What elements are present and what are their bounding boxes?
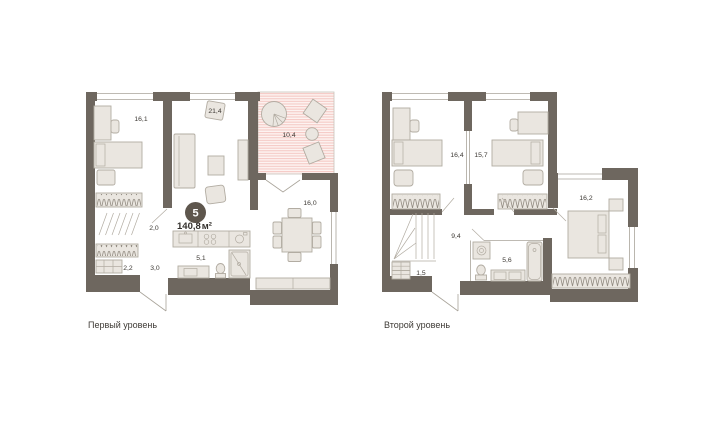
chair (313, 236, 322, 248)
room-area-label: 16,0 (303, 200, 316, 207)
desk-chair (111, 120, 119, 133)
chair (273, 236, 282, 248)
room-area-label: 2,2 (123, 265, 133, 272)
armchair (97, 170, 115, 185)
room-bedroom-2: 15,7 (474, 112, 548, 212)
toilet (216, 264, 226, 279)
room-area-label: 16,4 (450, 152, 463, 159)
desk (518, 112, 548, 134)
room-area-label: 10,4 (282, 132, 295, 139)
chair (205, 185, 226, 204)
chair (313, 222, 322, 234)
coffee-table (208, 156, 224, 175)
level-1-caption: Первый уровень (88, 320, 157, 330)
room-area-label: 16,2 (579, 195, 592, 202)
terrace-table (306, 128, 319, 141)
room-area-label: 5,1 (196, 255, 206, 262)
desk-chair (410, 120, 419, 132)
bed (94, 142, 142, 168)
room-bedroom: 16,1 (94, 106, 148, 207)
chair (288, 209, 301, 218)
sofa (174, 134, 195, 188)
nightstand (609, 258, 623, 270)
room-bedroom-3: 16,2 (552, 195, 630, 288)
washing-machine (473, 242, 490, 259)
room-area-label: 15,7 (474, 152, 487, 159)
room-area-label: 9,4 (451, 233, 461, 240)
room-hall: 9,4 (392, 213, 461, 261)
shower (229, 250, 250, 278)
tv-cabinet (238, 140, 248, 180)
room-area-label: 1,5 (416, 270, 426, 277)
room-bathroom: 5,6 (471, 229, 544, 281)
room-area-label: 21,4 (208, 108, 221, 115)
toilet (476, 265, 487, 280)
bed (392, 140, 442, 166)
level-2-caption: Второй уровень (384, 320, 450, 330)
armchair (394, 170, 413, 186)
dining-table (282, 218, 312, 252)
floor-plan-level-2: 16,4 15,7 16,2 9,4 1,5 (380, 80, 642, 312)
desk-chair (510, 119, 518, 131)
room-area-label: 3,0 (150, 265, 160, 272)
room-dining: 16,0 (256, 180, 330, 289)
chair (273, 222, 282, 234)
room-hall: 2,0 (99, 209, 167, 235)
double-bed (568, 211, 609, 258)
bed (492, 140, 543, 166)
room-storage: 2,2 3,0 (96, 244, 160, 273)
floor-plan-level-1: 10,4 16,1 (84, 80, 346, 312)
terrace: 10,4 (258, 92, 334, 174)
entrance-door (140, 292, 166, 311)
desk (393, 108, 410, 140)
unit-total-area: 140,8м² (177, 221, 212, 232)
room-living: 21,4 (174, 101, 248, 205)
bathtub (527, 242, 542, 281)
desk (94, 106, 111, 140)
room-storage: 1,5 (392, 262, 426, 279)
room-bedroom-1: 16,4 (392, 108, 464, 212)
nightstand (609, 199, 623, 211)
chair (288, 253, 301, 262)
unit-number: 5 (192, 208, 198, 220)
room-area-label: 16,1 (134, 116, 147, 123)
room-area-label: 2,0 (149, 225, 159, 232)
entrance-door (432, 292, 458, 311)
double-sink-vanity (491, 270, 525, 281)
room-kitchen: 5,1 (173, 231, 250, 278)
armchair (523, 170, 543, 185)
room-area-label: 5,6 (502, 257, 512, 264)
unit-info: 5 140,8м² (177, 202, 212, 232)
